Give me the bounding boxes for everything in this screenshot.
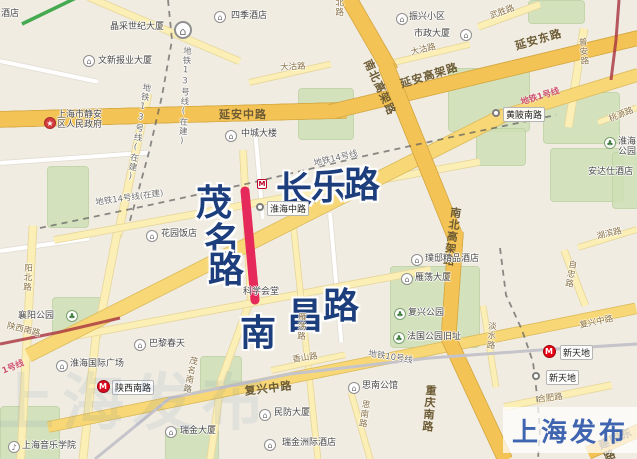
road-label: 普安路 bbox=[576, 37, 588, 66]
metro-line bbox=[22, 0, 80, 24]
station-label: 淮海中路 bbox=[267, 201, 309, 216]
publisher-watermark: 上海发布 bbox=[503, 407, 637, 453]
publisher-watermark-text: 上海发布 bbox=[512, 412, 628, 449]
metro-station-icon[interactable]: M bbox=[97, 380, 110, 393]
building-icon[interactable]: ⌂ bbox=[134, 339, 146, 351]
station-dot-icon[interactable] bbox=[256, 203, 264, 211]
government-icon[interactable]: ★ bbox=[44, 117, 56, 129]
poi-label: 思南公馆 bbox=[362, 381, 398, 391]
poi-label: 文新报业大厦 bbox=[98, 56, 152, 66]
building-icon[interactable]: ⌂ bbox=[396, 13, 408, 25]
major-road-name-char: 路 bbox=[344, 156, 380, 208]
map-canvas[interactable]: 上海发布 上海发布 延安中路延安东路延安高架路南北高架路南北高架路重庆南路建国东… bbox=[0, 0, 637, 459]
station-dot-icon[interactable] bbox=[532, 372, 540, 380]
poi-label: 雁荡大厦 bbox=[415, 273, 451, 283]
station-label: 黄陂南路 bbox=[503, 107, 545, 122]
poi-label: 四季酒店 bbox=[231, 11, 267, 21]
poi-label: 振兴小区 bbox=[409, 12, 445, 22]
building-icon[interactable]: ⌂ bbox=[264, 439, 276, 451]
poi-label: 襄阳公园 bbox=[18, 311, 54, 321]
metro-station-icon[interactable]: M bbox=[543, 345, 556, 358]
station-label: 陕西南路 bbox=[112, 380, 154, 395]
poi-label: 安达仕酒店 bbox=[588, 167, 633, 177]
building-icon[interactable]: ⌂ bbox=[174, 21, 192, 39]
building-icon[interactable]: ⌂ bbox=[165, 426, 177, 438]
building-icon[interactable]: ⌂ bbox=[348, 382, 360, 394]
music-icon[interactable]: ♪ bbox=[8, 441, 20, 453]
building-icon[interactable]: ⌂ bbox=[411, 254, 423, 266]
building-icon[interactable]: ⌂ bbox=[259, 409, 271, 421]
poi-label: 上海音乐学院 bbox=[22, 441, 76, 451]
building-icon[interactable]: ⌂ bbox=[214, 11, 226, 23]
road-label: 雁荡路 bbox=[295, 312, 306, 341]
building-icon[interactable]: ⌂ bbox=[460, 29, 472, 41]
road-label: 淡水路 bbox=[484, 321, 496, 350]
poi-label: 瑞金洲际酒店 bbox=[282, 438, 336, 448]
poi-label: 上海市静安 区人民政府 bbox=[57, 110, 102, 131]
metro-mini-icon[interactable]: M bbox=[257, 179, 267, 189]
poi-label: 淮海国际广场 bbox=[70, 359, 124, 369]
poi-label: 法国公园旧址 bbox=[407, 332, 461, 342]
major-road-name-char: 路 bbox=[208, 241, 244, 293]
poi-label: 中城大楼 bbox=[241, 129, 277, 139]
major-road-name-char: 路 bbox=[323, 277, 359, 329]
road-label: 重庆南路 bbox=[420, 384, 437, 433]
park-icon[interactable]: ♣ bbox=[393, 332, 405, 344]
station-label: 新天地 bbox=[560, 345, 593, 360]
park-icon[interactable]: ♣ bbox=[66, 310, 78, 322]
station-label: 新天地 bbox=[546, 370, 579, 385]
poi-label: 淮海公园 bbox=[618, 137, 637, 158]
building-icon[interactable]: ⌂ bbox=[225, 130, 237, 142]
poi-label: 璞邸精品酒店 bbox=[425, 254, 479, 264]
poi-label: 花园饭店 bbox=[161, 229, 197, 239]
poi-label: 民防大厦 bbox=[274, 408, 310, 418]
major-road-name-char: 南 bbox=[240, 304, 276, 356]
poi-label: 市政大厦 bbox=[414, 29, 450, 39]
building-icon[interactable]: ⌂ bbox=[146, 230, 158, 242]
road-label: 延安中路 bbox=[219, 109, 267, 122]
road-label: 大沽路 bbox=[280, 63, 306, 74]
poi-label: 巴黎春天 bbox=[149, 339, 185, 349]
poi-label: 科学会堂 bbox=[243, 287, 279, 297]
park-icon[interactable]: ♣ bbox=[604, 137, 616, 149]
building-icon[interactable]: ⌂ bbox=[401, 273, 413, 285]
road-label: 北路 bbox=[333, 0, 343, 17]
poi-label: 复兴公园 bbox=[408, 308, 444, 318]
building-icon[interactable]: ⌂ bbox=[56, 360, 68, 372]
metro-lines-layer bbox=[0, 0, 637, 459]
station-dot-icon[interactable] bbox=[492, 109, 500, 117]
poi-label: 晶采世纪大厦 bbox=[110, 22, 164, 32]
park-icon[interactable]: ♣ bbox=[394, 308, 406, 320]
building-icon[interactable]: ⌂ bbox=[83, 55, 95, 67]
road-label: 阳北路 bbox=[21, 263, 32, 292]
highlighted-road-segment bbox=[245, 191, 255, 300]
metro-line bbox=[611, 0, 619, 80]
poi-label: 酒店 bbox=[1, 9, 19, 19]
poi-label: 瑞金大厦 bbox=[180, 426, 216, 436]
